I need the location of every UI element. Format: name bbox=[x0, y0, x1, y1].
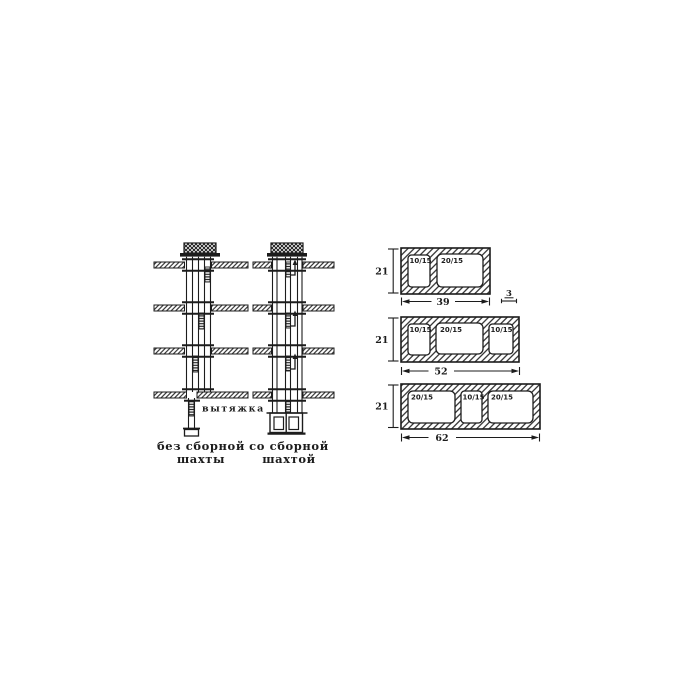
duct-grille bbox=[205, 267, 210, 282]
floor-slab bbox=[253, 305, 272, 311]
width-dimension-label: 39 bbox=[436, 297, 450, 308]
duct-grille bbox=[286, 313, 291, 328]
floor-slab bbox=[212, 305, 249, 311]
floor-slab bbox=[197, 392, 248, 398]
vent-block-39: 10/15 20/15 21 39 3 bbox=[375, 248, 516, 308]
floor-slab bbox=[212, 348, 249, 354]
width-dimension-label: 62 bbox=[435, 433, 448, 444]
height-dimension-label: 21 bbox=[375, 402, 388, 413]
scanned-figure-page: вытяжка без сборной шахты bbox=[0, 0, 700, 700]
cell-size-label: 10/15 bbox=[410, 257, 432, 265]
floor-slab bbox=[303, 262, 334, 268]
floor-slab bbox=[154, 392, 187, 398]
cell-size-label: 10/15 bbox=[463, 394, 485, 402]
duct-grille bbox=[199, 313, 204, 329]
shaft-head-flange bbox=[267, 253, 307, 257]
channel-foot bbox=[185, 430, 199, 437]
width-dimension: 52 bbox=[402, 367, 520, 378]
figure-canvas: вытяжка без сборной шахты bbox=[0, 0, 700, 700]
collector-base bbox=[267, 413, 308, 434]
floor-slabs bbox=[154, 262, 248, 398]
duct-grille bbox=[286, 356, 291, 371]
shaft-head-cap bbox=[271, 243, 303, 253]
floor-slab bbox=[253, 348, 272, 354]
airflow-arrow bbox=[291, 358, 296, 369]
height-dimension bbox=[388, 385, 399, 428]
cell-size-label: 20/15 bbox=[441, 257, 463, 265]
floor-slab bbox=[212, 262, 249, 268]
height-dimension bbox=[388, 318, 399, 361]
width-dimension: 62 bbox=[402, 433, 540, 444]
caption-with-collector-line2: шахтой bbox=[262, 452, 316, 466]
vent-block-52: 10/15 20/15 10/15 21 52 bbox=[375, 317, 519, 378]
base-cell bbox=[274, 417, 284, 430]
shaft-diagram-with-collector: со сборной шахтой bbox=[249, 243, 334, 466]
caption-without-collector-line2: шахты bbox=[177, 452, 225, 466]
base-cell bbox=[289, 417, 299, 430]
caption-without-collector-line1: без сборной bbox=[157, 439, 245, 453]
floor-slab bbox=[154, 348, 185, 354]
height-dimension bbox=[388, 249, 399, 293]
duct-grille bbox=[286, 401, 291, 412]
duct-joint-ticks bbox=[268, 259, 306, 400]
airflow-arrow bbox=[291, 315, 296, 326]
airflow-arrowhead bbox=[293, 260, 298, 266]
floor-slab bbox=[154, 305, 185, 311]
shaft-head-flange bbox=[180, 253, 220, 257]
floor-slab bbox=[303, 305, 334, 311]
exhaust-channel bbox=[183, 398, 200, 436]
floor-slab bbox=[303, 348, 334, 354]
shaft-diagram-without-collector: вытяжка без сборной шахты bbox=[154, 243, 265, 466]
caption-with-collector-line1: со сборной bbox=[249, 439, 329, 453]
floor-slab bbox=[303, 392, 334, 398]
floor-connection-1 bbox=[286, 260, 297, 278]
height-dimension-label: 21 bbox=[375, 267, 388, 278]
cell-size-label: 10/15 bbox=[491, 326, 513, 334]
cell-size-label: 20/15 bbox=[491, 394, 513, 402]
duct-grille bbox=[286, 262, 291, 277]
vent-block-62: 20/15 10/15 20/15 21 62 bbox=[375, 384, 540, 444]
cell-size-label: 20/15 bbox=[411, 394, 433, 402]
floor-slab bbox=[253, 392, 272, 398]
cell-size-label: 10/15 bbox=[410, 326, 432, 334]
exhaust-label: вытяжка bbox=[202, 404, 265, 415]
height-dimension-label: 21 bbox=[375, 335, 388, 346]
wall-thickness-dimension: 3 bbox=[502, 289, 517, 303]
floor-slab bbox=[154, 262, 185, 268]
floor-slabs bbox=[253, 262, 334, 398]
shaft-head-cap bbox=[184, 243, 216, 253]
cell-size-label: 20/15 bbox=[440, 326, 462, 334]
airflow-arrow bbox=[291, 264, 296, 275]
width-dimension: 39 bbox=[402, 297, 490, 308]
duct-grille bbox=[193, 356, 198, 372]
exhaust-grille bbox=[189, 401, 194, 416]
floor-slab bbox=[253, 262, 272, 268]
width-dimension-label: 52 bbox=[434, 367, 447, 378]
